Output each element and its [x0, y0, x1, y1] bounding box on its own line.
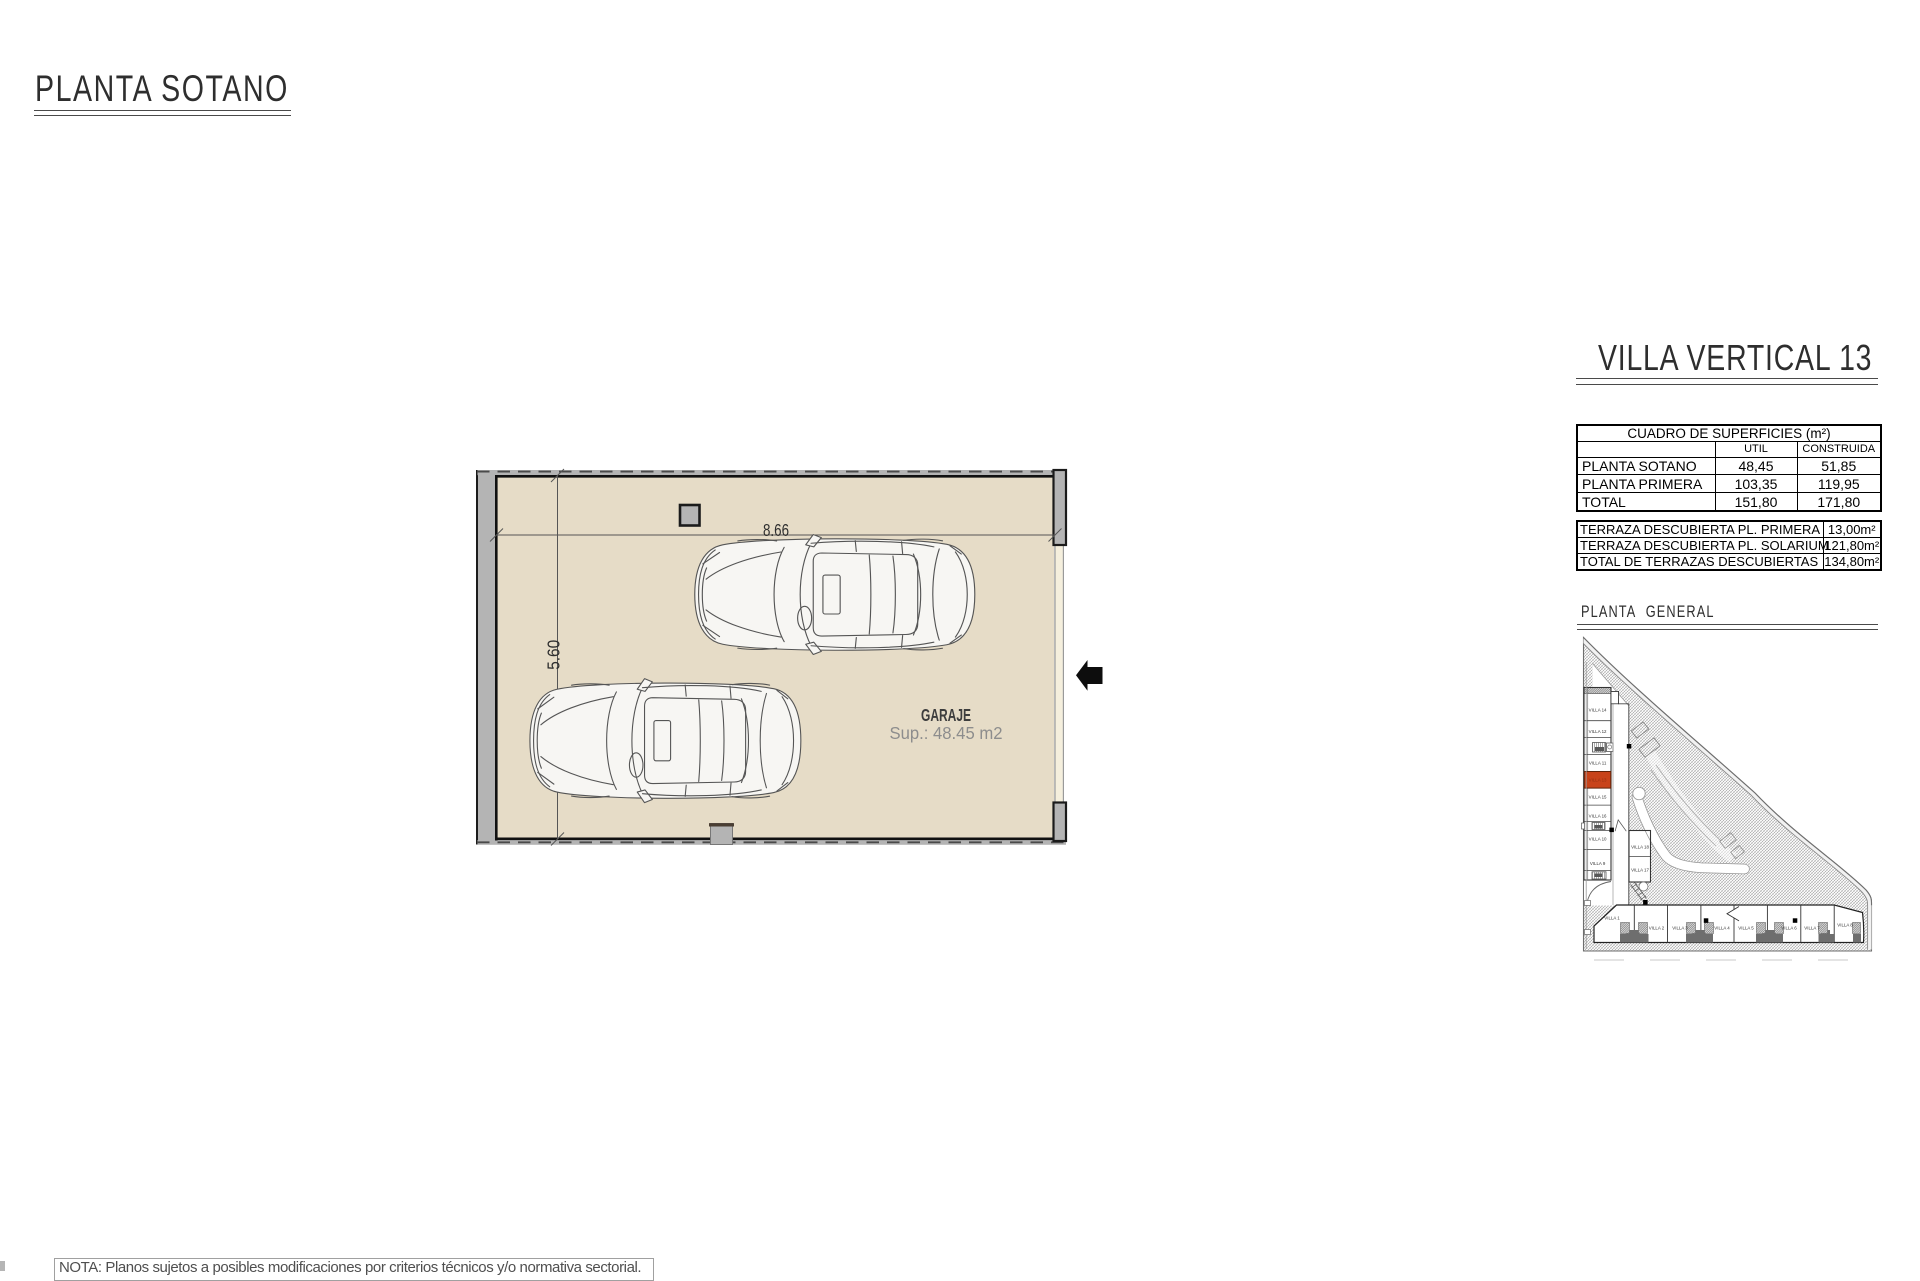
svg-text:VILLA 2: VILLA 2: [1649, 926, 1665, 931]
svg-text:VILLA 16: VILLA 16: [1589, 813, 1607, 818]
svg-text:VILLA 5: VILLA 5: [1738, 926, 1754, 931]
svg-text:VILLA 3: VILLA 3: [1672, 926, 1688, 931]
svg-text:VILLA 8: VILLA 8: [1837, 923, 1853, 928]
svg-text:VILLA 7: VILLA 7: [1804, 926, 1820, 931]
svg-text:VILLA 9: VILLA 9: [1590, 861, 1606, 866]
svg-text:VILLA 11: VILLA 11: [1589, 761, 1607, 766]
svg-text:VILLA 14: VILLA 14: [1589, 707, 1607, 712]
svg-text:VILLA 12: VILLA 12: [1589, 729, 1607, 734]
svg-text:VILLA 1: VILLA 1: [1604, 916, 1620, 921]
svg-text:VILLA 13: VILLA 13: [1589, 778, 1607, 783]
svg-text:VILLA 17: VILLA 17: [1631, 867, 1649, 872]
svg-text:VILLA 6: VILLA 6: [1781, 926, 1797, 931]
svg-text:VILLA 10: VILLA 10: [1589, 837, 1607, 842]
svg-text:VILLA 4: VILLA 4: [1714, 926, 1730, 931]
svg-text:VILLA 15: VILLA 15: [1589, 794, 1607, 799]
svg-text:VILLA 18: VILLA 18: [1631, 844, 1649, 849]
